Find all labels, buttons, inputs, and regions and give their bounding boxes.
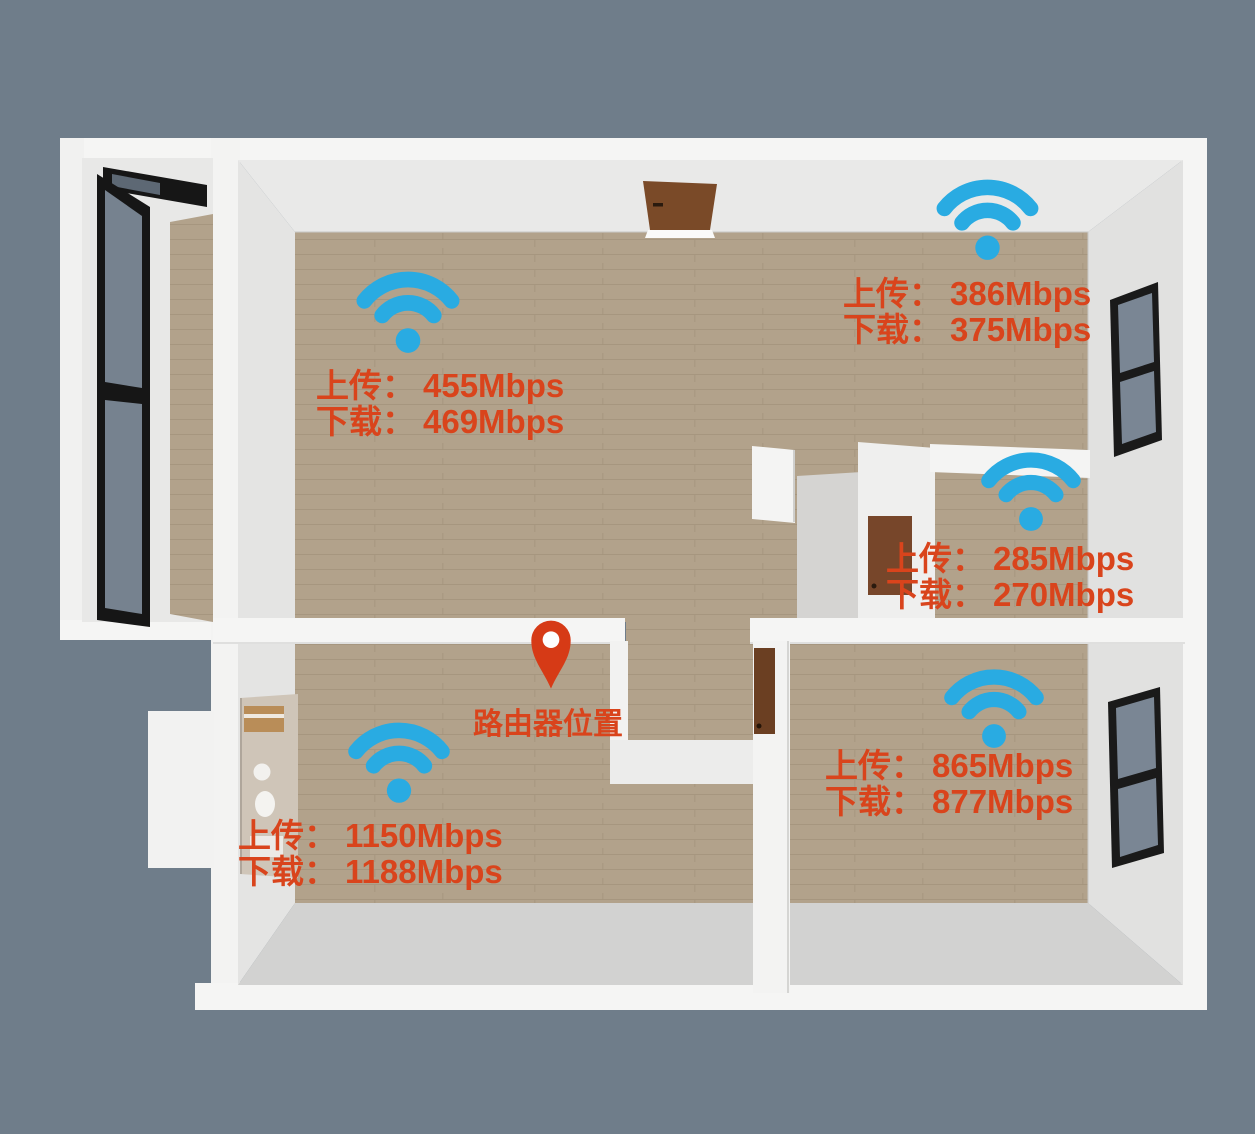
measurement-upper-right-area: 上传：386Mbps 下载：375Mbps bbox=[843, 276, 1091, 348]
upload-value: 386Mbps bbox=[950, 275, 1091, 312]
wifi-icon bbox=[933, 660, 1055, 750]
download-value: 270Mbps bbox=[993, 576, 1134, 613]
measurement-lower-left-room: 上传：1150Mbps 下载：1188Mbps bbox=[238, 818, 503, 890]
upload-line: 上传：455Mbps bbox=[316, 368, 564, 404]
closet-niche-floor bbox=[797, 472, 862, 622]
wifi-icon bbox=[337, 713, 461, 805]
balcony-floor bbox=[170, 214, 213, 622]
upload-value: 455Mbps bbox=[423, 367, 564, 404]
upload-line: 上传：865Mbps bbox=[825, 748, 1073, 784]
upload-label: 上传： bbox=[825, 747, 924, 784]
floor-plan-scene: 路由器位置 上传：455Mbps 下载：469Mbps 上传：386Mbps 下… bbox=[0, 0, 1255, 1134]
download-value: 469Mbps bbox=[423, 403, 564, 440]
wifi-icon bbox=[345, 262, 471, 355]
bathroom-sink bbox=[254, 764, 271, 781]
wifi-icon bbox=[970, 443, 1092, 533]
bathroom-toilet bbox=[255, 791, 275, 817]
download-value: 877Mbps bbox=[932, 783, 1073, 820]
upload-label: 上传： bbox=[316, 367, 415, 404]
download-line: 下载：877Mbps bbox=[825, 784, 1073, 820]
measurement-lower-right-room: 上传：865Mbps 下载：877Mbps bbox=[825, 748, 1073, 820]
upload-line: 上传：1150Mbps bbox=[238, 818, 503, 854]
download-label: 下载： bbox=[825, 783, 924, 820]
download-label: 下载： bbox=[886, 576, 985, 613]
upload-value: 865Mbps bbox=[932, 747, 1073, 784]
download-line: 下载：375Mbps bbox=[843, 312, 1091, 348]
measurement-upper-left-room: 上传：455Mbps 下载：469Mbps bbox=[316, 368, 564, 440]
upload-line: 上传：285Mbps bbox=[886, 541, 1134, 577]
middle-wall-right bbox=[750, 618, 1185, 644]
download-line: 下载：270Mbps bbox=[886, 577, 1134, 613]
door-handle bbox=[653, 203, 663, 207]
wifi-icon bbox=[925, 170, 1050, 262]
wall-stub bbox=[752, 446, 795, 523]
measurement-middle-right-room: 上传：285Mbps 下载：270Mbps bbox=[886, 541, 1134, 613]
download-line: 下载：1188Mbps bbox=[238, 854, 503, 890]
bathroom-shelf bbox=[244, 706, 284, 732]
upload-line: 上传：386Mbps bbox=[843, 276, 1091, 312]
upload-value: 1150Mbps bbox=[345, 817, 503, 854]
upload-label: 上传： bbox=[886, 540, 985, 577]
router-location-label: 路由器位置 bbox=[473, 699, 623, 743]
lower-divider-door bbox=[754, 648, 775, 734]
download-value: 1188Mbps bbox=[345, 853, 503, 890]
router-location-pin-icon bbox=[527, 617, 575, 691]
upload-label: 上传： bbox=[238, 817, 337, 854]
balcony bbox=[82, 158, 213, 627]
south-wall-face bbox=[238, 903, 1183, 985]
upload-value: 285Mbps bbox=[993, 540, 1134, 577]
download-label: 下载： bbox=[238, 853, 337, 890]
vestibule-south-wall bbox=[610, 740, 755, 784]
bathroom-block bbox=[148, 711, 214, 868]
download-label: 下载： bbox=[843, 311, 942, 348]
entrance-door bbox=[643, 181, 717, 238]
download-value: 375Mbps bbox=[950, 311, 1091, 348]
download-label: 下载： bbox=[316, 403, 415, 440]
download-line: 下载：469Mbps bbox=[316, 404, 564, 440]
upload-label: 上传： bbox=[843, 275, 942, 312]
